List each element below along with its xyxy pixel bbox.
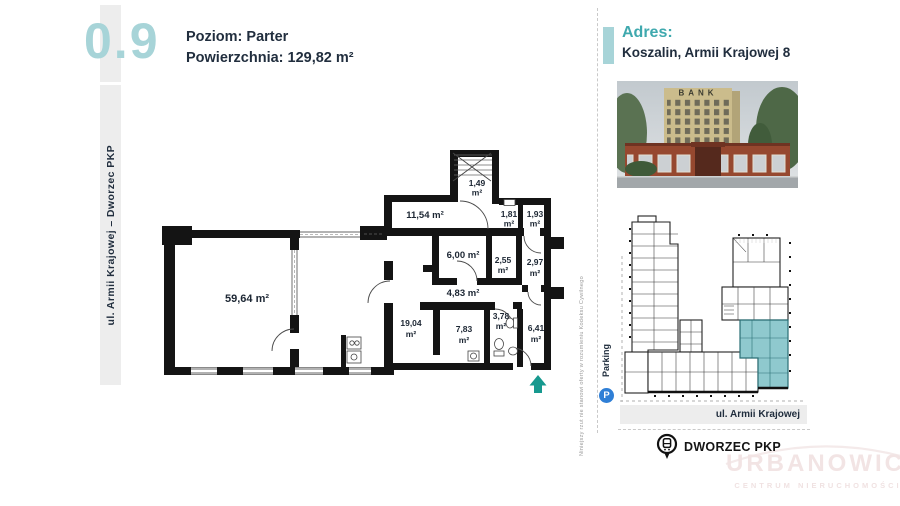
- legal-disclaimer: Niniejszy rzut nie stanowi oferty w rozu…: [576, 238, 588, 494]
- panel-separator: [597, 8, 598, 433]
- room-area-label: 2,97: [527, 257, 544, 267]
- photo-entrance: [695, 147, 721, 177]
- room-area-unit: m²: [406, 329, 417, 339]
- room-area-label: 4,83 m²: [447, 288, 480, 299]
- train-station-badge: DWORZEC PKP: [655, 433, 781, 461]
- room-area-label: 1,81: [501, 209, 518, 219]
- room-area-label: 6,41: [528, 323, 545, 333]
- photo-tower-side: [732, 91, 740, 145]
- area-line: Powierzchnia:129,82 m²: [186, 48, 354, 69]
- photo-road: [617, 178, 798, 189]
- floor-plan: 59,64 m² 11,54 m² 1,49 m² 1,81 m² 1,93 m…: [147, 137, 597, 407]
- room-area-label: 1,49: [469, 178, 486, 188]
- unit-number: 0.9: [84, 12, 160, 70]
- area-value: 129,82 m²: [288, 50, 354, 66]
- address-accent-bar: [603, 27, 614, 64]
- street-strip-left-label: ul. Armii Krajowej – Dworzec PKP: [105, 145, 117, 325]
- parking-label-text: Parking: [601, 344, 611, 377]
- room-area-label: 59,64 m²: [225, 293, 269, 305]
- entrance-arrow-icon: [530, 375, 547, 393]
- photo-bush: [625, 161, 657, 177]
- building-photo: BANK: [617, 81, 798, 188]
- address-value: Koszalin, Armii Krajowej 8: [622, 45, 790, 60]
- room-area-label: 3,78: [493, 311, 510, 321]
- room-area-unit: m²: [496, 321, 507, 331]
- area-label: Powierzchnia:: [186, 50, 284, 66]
- legal-disclaimer-text: Niniejszy rzut nie stanowi oferty w rozu…: [579, 276, 585, 456]
- address-label: Adres:: [622, 24, 673, 42]
- room-area-label: 1,93: [527, 209, 544, 219]
- watermark-tagline: CENTRUM NIERUCHOMOŚCI: [726, 481, 900, 490]
- train-station-label: DWORZEC PKP: [684, 440, 781, 454]
- photo-bank-sign: BANK: [678, 89, 717, 98]
- room-area-unit: m²: [530, 268, 541, 278]
- photo-tower-windows: [667, 99, 729, 144]
- room-area-unit: m²: [472, 188, 483, 198]
- room-area-unit: m²: [504, 219, 515, 229]
- train-station-icon: [655, 433, 679, 461]
- room-area-label: 19,04: [400, 318, 422, 328]
- photo-canopy: [691, 142, 725, 147]
- level-label: Poziom: Parter: [186, 27, 354, 48]
- site-plan: [618, 212, 808, 404]
- street-strip-left: ul. Armii Krajowej – Dworzec PKP: [100, 85, 121, 385]
- room-area-label: 6,00 m²: [447, 250, 480, 261]
- stairs: [453, 153, 492, 181]
- header-info: Poziom: Parter Powierzchnia:129,82 m²: [186, 27, 354, 69]
- room-area-label: 11,54 m²: [406, 210, 444, 221]
- parking-label: Parking: [599, 337, 613, 385]
- parking-icon: P: [599, 388, 614, 403]
- property-flyer-page: { "header": { "unit_number": "0.9", "lev…: [0, 0, 900, 506]
- street-strip-bottom: ul. Armii Krajowej: [620, 405, 807, 424]
- room-area-label: 7,83: [456, 324, 473, 334]
- room-area-unit: m²: [498, 265, 509, 275]
- bottom-dashed-line: [618, 429, 810, 430]
- photo-curb: [617, 176, 798, 178]
- room-area-unit: m²: [459, 335, 470, 345]
- room-area-label: 2,55: [495, 255, 512, 265]
- room-area-unit: m²: [531, 334, 542, 344]
- room-area-unit: m²: [530, 219, 541, 229]
